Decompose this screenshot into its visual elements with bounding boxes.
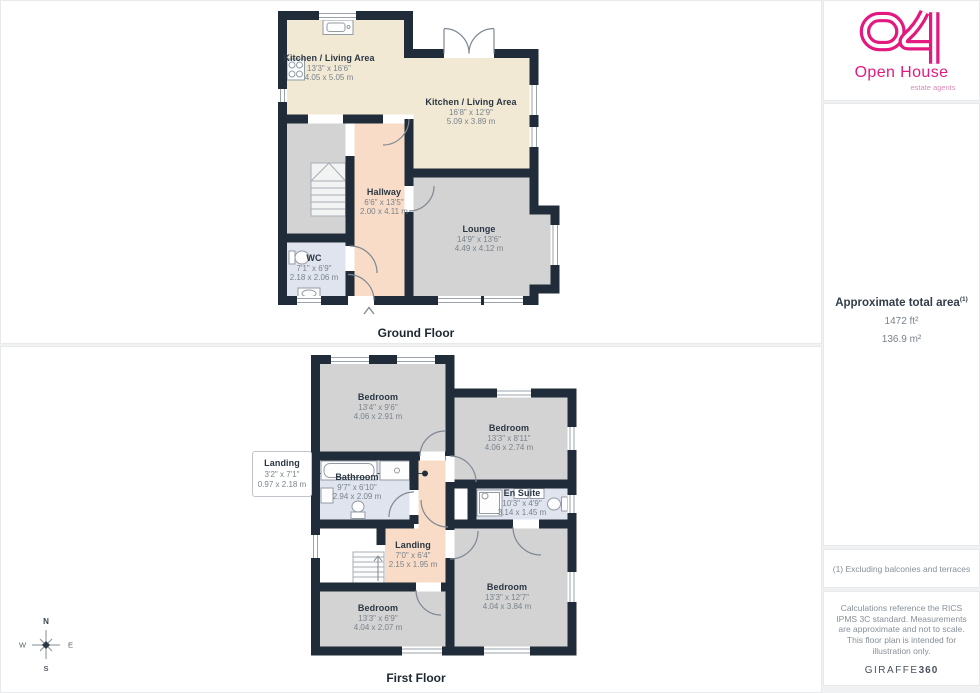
- first-floor-title: First Floor: [386, 671, 445, 685]
- compass-star-icon: [20, 619, 72, 671]
- room-label-bedroom-3: Bedroom 13'3" x 6'9" 4.04 x 2.07 m: [354, 603, 402, 633]
- room-label-ensuite: En Suite 10'3" x 4'9" 3.14 x 1.45 m: [498, 488, 546, 518]
- stairs-icon: [311, 163, 346, 216]
- open-house-logo-icon: [844, 9, 960, 67]
- landing-callout: Landing 3'2" x 7'1" 0.97 x 2.18 m: [252, 451, 312, 497]
- ground-floor-plan: [1, 1, 823, 345]
- footnote-marker: (1): [960, 296, 968, 303]
- room-label-kitchen-living-2: Kitchen / Living Area 16'8" x 12'9" 5.09…: [425, 97, 516, 127]
- disclaimer-text: Calculations reference the RICS IPMS 3C …: [831, 603, 973, 656]
- brand-name: Open House: [855, 64, 949, 82]
- disclaimer-card: Calculations reference the RICS IPMS 3C …: [823, 591, 980, 686]
- room-label-lounge: Lounge 14'9" x 13'6" 4.49 x 4.12 m: [455, 224, 503, 254]
- ensuite-toilet-icon: [548, 497, 568, 511]
- room-label-bathroom: Bathroom 9'7" x 6'10" 2.94 x 2.09 m: [333, 472, 381, 502]
- room-label-bedroom-1: Bedroom 13'4" x 9'6" 4.06 x 2.91 m: [354, 392, 402, 422]
- total-area-card: Approximate total area(1) 1472 ft² 136.9…: [823, 103, 980, 546]
- floorplan-page: Kitchen / Living Area 13'3" x 16'6" 4.05…: [0, 0, 980, 693]
- room-label-kitchen-living-1: Kitchen / Living Area 13'3" x 16'6" 4.05…: [283, 53, 374, 83]
- footnote-card: (1) Excluding balconies and terraces: [823, 549, 980, 588]
- total-area-imperial: 1472 ft²: [824, 316, 979, 327]
- room-label-wc: WC 7'1" x 6'9" 2.18 x 2.06 m: [290, 253, 338, 283]
- entrance-arrow-icon: [364, 308, 374, 315]
- total-area-heading: Approximate total area(1): [824, 296, 979, 309]
- bathroom-cabinet-icon: [321, 488, 333, 503]
- provider-logo: GIRAFFE360: [824, 665, 979, 676]
- stairs-icon: [353, 552, 384, 584]
- room-label-bedroom-4: Bedroom 13'3" x 12'7" 4.04 x 3.84 m: [483, 582, 531, 612]
- first-floor-panel: Bedroom 13'4" x 9'6" 4.06 x 2.91 m Bedro…: [0, 346, 822, 693]
- kitchen-counter-sink-icon: [323, 20, 353, 35]
- compass-icon: N W E S: [20, 619, 72, 671]
- first-floor-plan: [1, 347, 823, 693]
- bathroom-sink-icon: [380, 461, 410, 480]
- bathroom-toilet-icon: [351, 501, 365, 519]
- room-label-hallway: Hallway 6'6" x 13'5" 2.00 x 4.11 m: [360, 187, 408, 217]
- room-label-landing: Landing 7'0" x 6'4" 2.15 x 1.95 m: [389, 540, 437, 570]
- ground-floor-panel: Kitchen / Living Area 13'3" x 16'6" 4.05…: [0, 0, 822, 344]
- sidebar: Open House estate agents Approximate tot…: [823, 0, 980, 693]
- total-area-metric: 136.9 m²: [824, 334, 979, 345]
- logo-card: Open House estate agents: [823, 0, 980, 101]
- footnote-text: (1) Excluding balconies and terraces: [833, 564, 971, 574]
- brand-tagline: estate agents: [848, 83, 956, 92]
- ground-floor-title: Ground Floor: [378, 326, 455, 340]
- room-label-bedroom-2: Bedroom 13'3" x 8'11" 4.06 x 2.74 m: [485, 423, 533, 453]
